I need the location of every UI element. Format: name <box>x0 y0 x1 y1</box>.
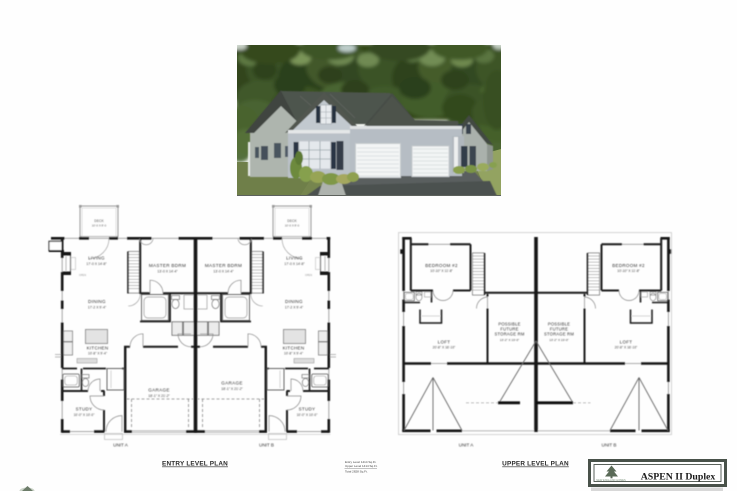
svg-text:Upper Level 1414 Sq.Ft.: Upper Level 1414 Sq.Ft. <box>345 464 378 468</box>
svg-text:BEDROOM #2: BEDROOM #2 <box>612 263 645 268</box>
svg-text:ASPEN II Duplex: ASPEN II Duplex <box>641 472 716 483</box>
svg-text:LOFT: LOFT <box>438 340 451 345</box>
svg-text:NEW ENGLAND HOMES: NEW ENGLAND HOMES <box>596 478 626 482</box>
svg-text:LOFT: LOFT <box>620 340 633 345</box>
svg-text:GARAGE: GARAGE <box>148 388 169 393</box>
svg-text:10'-0" X 10'-0": 10'-0" X 10'-0" <box>297 413 319 417</box>
svg-text:17'-2 X 9'-4": 17'-2 X 9'-4" <box>88 305 107 309</box>
svg-text:MASTER BDRM: MASTER BDRM <box>149 263 186 268</box>
svg-text:LIVING: LIVING <box>286 256 303 261</box>
svg-text:18'-1" X 21'-2": 18'-1" X 21'-2" <box>148 394 170 398</box>
svg-text:17'-0 X 14'-8": 17'-0 X 14'-8" <box>284 262 305 266</box>
svg-text:OPEN: OPEN <box>79 273 86 277</box>
svg-text:17'-0 X 14'-8": 17'-0 X 14'-8" <box>86 262 107 266</box>
svg-text:Total 2828 Sq.Ft: Total 2828 Sq.Ft. <box>345 470 368 474</box>
svg-text:13'-0 X 14'-4": 13'-0 X 14'-4" <box>213 269 234 273</box>
svg-text:10'-0" X 10'-0": 10'-0" X 10'-0" <box>74 413 96 417</box>
svg-text:LIVING: LIVING <box>88 256 105 261</box>
svg-text:KITCHEN: KITCHEN <box>87 346 109 351</box>
svg-text:MASTER BDRM: MASTER BDRM <box>205 263 242 268</box>
svg-text:10'-10" X 11'-8": 10'-10" X 11'-8" <box>617 269 640 273</box>
svg-text:10'-0 X 8'-0: 10'-0 X 8'-0 <box>92 223 107 227</box>
svg-text:10'-8" X 9'-4": 10'-8" X 9'-4" <box>88 352 108 356</box>
svg-text:13'-2" X 19'-0": 13'-2" X 19'-0" <box>500 338 520 342</box>
svg-text:GARAGE: GARAGE <box>221 381 242 386</box>
svg-text:UNIT B: UNIT B <box>259 443 274 448</box>
svg-text:ENTRY LEVEL PLAN: ENTRY LEVEL PLAN <box>162 461 228 468</box>
svg-text:10'-10" X 11'-8": 10'-10" X 11'-8" <box>430 269 453 273</box>
svg-text:20'-8" X 16'-10": 20'-8" X 16'-10" <box>433 346 456 350</box>
svg-text:13'-0 X 14'-4": 13'-0 X 14'-4" <box>157 269 178 273</box>
svg-text:DINING: DINING <box>285 299 303 304</box>
svg-text:13'-2" X 19'-0": 13'-2" X 19'-0" <box>549 338 569 342</box>
svg-text:STUDY: STUDY <box>76 407 93 412</box>
svg-text:STORAGE RM: STORAGE RM <box>544 332 574 337</box>
svg-text:10'-8" X 9'-4": 10'-8" X 9'-4" <box>284 352 304 356</box>
svg-text:UNIT A: UNIT A <box>113 443 129 448</box>
svg-text:UPPER LEVEL PLAN: UPPER LEVEL PLAN <box>502 461 569 468</box>
svg-text:STORAGE RM: STORAGE RM <box>494 332 524 337</box>
svg-text:10'-0 X 8'-0: 10'-0 X 8'-0 <box>285 223 300 227</box>
svg-text:OPEN: OPEN <box>305 273 312 277</box>
svg-text:BEDROOM #2: BEDROOM #2 <box>425 263 458 268</box>
svg-text:20'-8" X 16'-10": 20'-8" X 16'-10" <box>615 346 638 350</box>
svg-text:STUDY: STUDY <box>299 407 316 412</box>
svg-text:KITCHEN: KITCHEN <box>283 346 305 351</box>
svg-text:UNIT B: UNIT B <box>602 443 617 448</box>
svg-text:DINING: DINING <box>88 299 106 304</box>
svg-text:18'-1" X 21'-2": 18'-1" X 21'-2" <box>221 387 243 391</box>
svg-text:UNIT A: UNIT A <box>459 443 475 448</box>
svg-text:17'-2 X 9'-4": 17'-2 X 9'-4" <box>285 305 304 309</box>
